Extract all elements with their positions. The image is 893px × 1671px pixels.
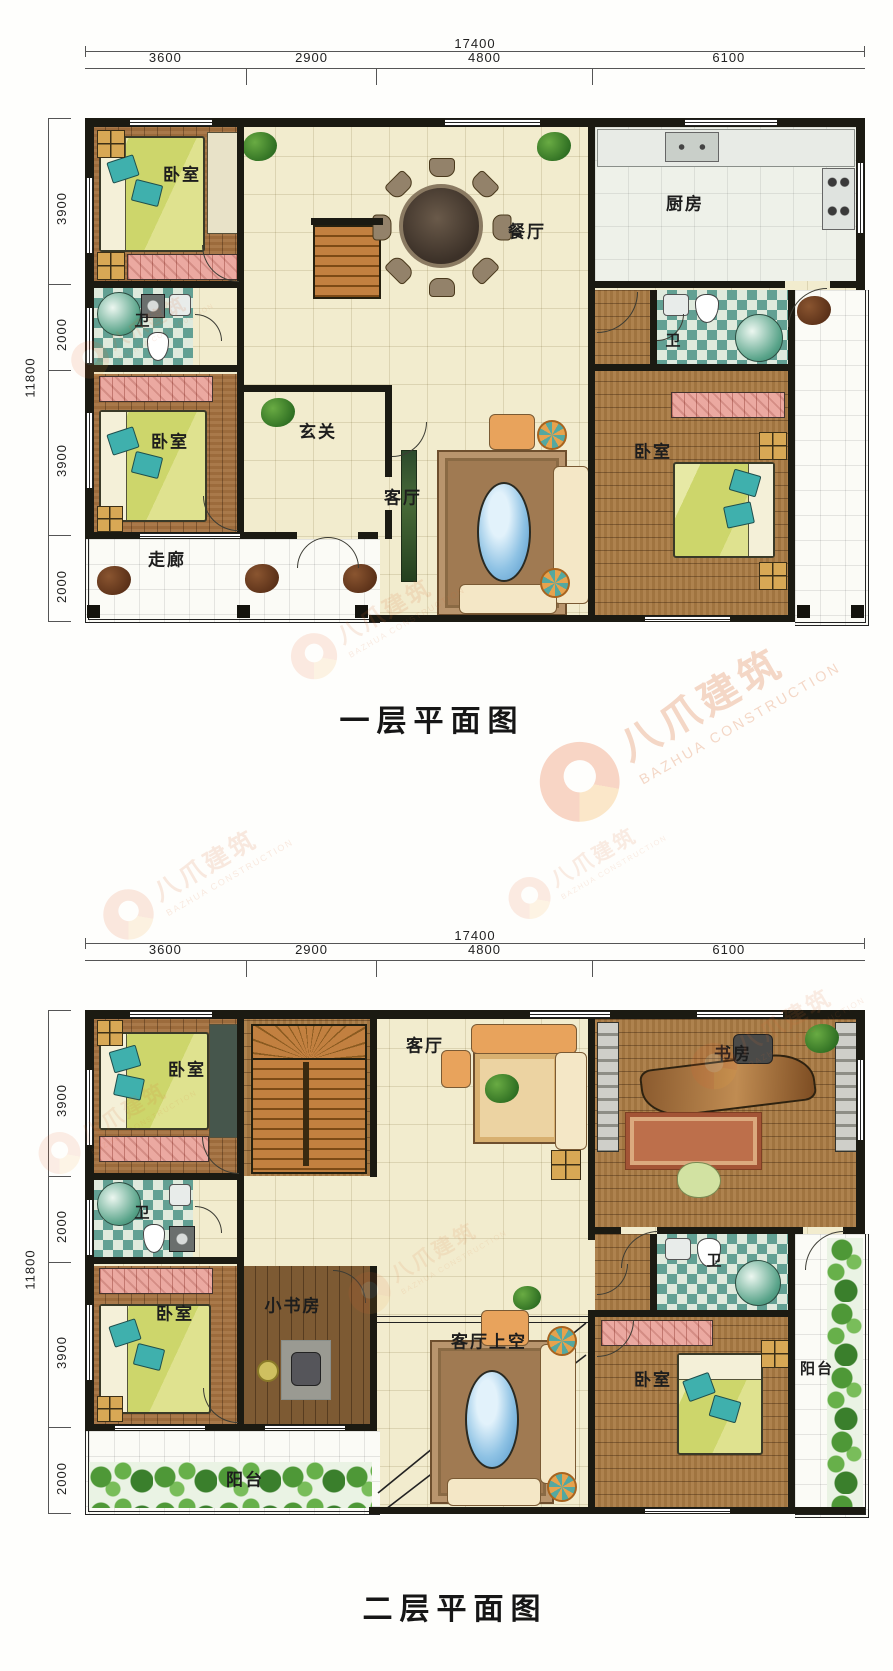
dim-seg: 2000 <box>49 1177 71 1263</box>
staircase <box>251 1058 367 1174</box>
floor1-plan: 卧室 卫 卧室 走廊 餐厅 玄关 客厅 厨房 卫 卧室 <box>85 118 865 622</box>
room-label-bedroom: 卧室 <box>168 1056 206 1081</box>
room-label-living-void: 客厅上空 <box>451 1328 527 1353</box>
dim-seg: 2900 <box>247 69 378 85</box>
wall <box>588 1310 790 1317</box>
living2-rug <box>473 1052 561 1144</box>
dim-total: 17400 <box>85 928 865 943</box>
watermark-brand-cn: 八爪建筑 <box>146 805 290 909</box>
room-label-entry: 玄关 <box>299 418 337 443</box>
dim-seg: 2000 <box>49 536 71 622</box>
wall <box>843 1227 857 1234</box>
dim-seg: 6100 <box>593 69 865 85</box>
dim-seg: 3600 <box>85 69 247 85</box>
window <box>86 1200 93 1255</box>
dining-chair <box>384 254 416 286</box>
room-label-small-study: 小书房 <box>265 1292 322 1317</box>
window <box>445 119 540 126</box>
beanbag <box>677 1162 721 1198</box>
wall <box>85 1173 244 1180</box>
room-label-living: 客厅 <box>384 484 422 509</box>
dim-total-label: 17400 <box>454 36 495 51</box>
wall <box>657 1227 803 1234</box>
armchair <box>441 1050 471 1088</box>
watermark-brand-en: BAZHUA CONSTRUCTION <box>559 833 668 901</box>
window <box>530 1011 610 1018</box>
wall <box>244 385 392 392</box>
wall <box>369 1507 595 1514</box>
nightstand <box>761 1340 789 1368</box>
room-label-bath: 卫 <box>134 1202 151 1223</box>
dining-table-set <box>385 170 497 282</box>
coffee-table <box>465 1370 519 1469</box>
watermark-logo-icon <box>525 727 634 836</box>
dim-seg: 4800 <box>377 69 592 85</box>
fan-decor <box>537 420 567 450</box>
wall <box>588 1010 595 1240</box>
fan-decor <box>547 1472 577 1502</box>
room-label-balcony: 阳台 <box>226 1466 264 1491</box>
window <box>130 119 212 126</box>
round-dining-table <box>399 184 483 268</box>
dining-chair <box>469 254 501 286</box>
wall <box>244 532 297 539</box>
watermark-logo-icon <box>282 625 345 688</box>
stair-rail <box>303 1062 309 1166</box>
room-label-balcony: 阳台 <box>800 1358 834 1379</box>
nightstand <box>97 1020 123 1046</box>
dim-chain-left-floor2: 11800 3900 2000 3900 2000 <box>18 1010 72 1514</box>
dim-seg: 6100 <box>593 961 865 977</box>
kitchen-counter <box>597 129 855 167</box>
sofa <box>471 1024 577 1054</box>
dresser <box>99 376 213 402</box>
dim-seg: 2000 <box>49 285 71 371</box>
porch-column <box>355 605 368 618</box>
fan-decor <box>547 1326 577 1356</box>
window <box>86 413 93 488</box>
dim-seg: 2000 <box>49 1428 71 1514</box>
dim-segments: 3900 2000 3900 2000 <box>48 1010 71 1514</box>
dim-chain-top-floor1: 17400 3600 2900 4800 6100 <box>85 36 865 85</box>
wall <box>830 281 865 288</box>
plant <box>537 132 571 161</box>
side-table <box>551 1150 581 1180</box>
dim-seg: 3900 <box>49 1010 71 1177</box>
wall <box>358 532 378 539</box>
wall <box>588 1312 595 1514</box>
nightstand <box>97 506 123 532</box>
dim-seg: 3900 <box>49 118 71 285</box>
floor2-plan: 卧室 客厅 书房 卫 卧室 小书房 客厅上空 卫 卧室 阳台 阳台 <box>85 1010 865 1514</box>
watermark-brand-cn: 八爪建筑 <box>607 608 835 772</box>
window <box>645 616 730 621</box>
wall <box>370 1266 377 1424</box>
window <box>86 178 93 253</box>
wall <box>370 1010 377 1177</box>
room-label-living: 客厅 <box>406 1032 444 1057</box>
wall <box>385 510 392 539</box>
window <box>685 119 777 126</box>
kitchen-sink <box>665 132 719 162</box>
dim-segments: 3900 2000 3900 2000 <box>48 118 71 622</box>
room-label-bath: 卫 <box>134 310 151 331</box>
window <box>115 1425 205 1430</box>
room-label-kitchen: 厨房 <box>666 190 704 215</box>
wall <box>595 281 785 288</box>
dim-segments: 3600 2900 4800 6100 <box>85 960 865 977</box>
wall <box>650 290 657 368</box>
watermark-brand-en: BAZHUA CONSTRUCTION <box>164 836 295 918</box>
sink <box>665 1238 691 1260</box>
nightstand <box>97 252 125 280</box>
dim-total: 11800 <box>23 1249 38 1289</box>
dim-chain-left-floor1: 11800 3900 2000 3900 2000 <box>18 118 72 622</box>
tv-wall-plants <box>401 450 417 582</box>
wall <box>237 118 244 539</box>
window <box>130 1011 212 1018</box>
shower <box>735 1260 781 1306</box>
stair-winder <box>251 1024 367 1060</box>
window <box>140 533 240 538</box>
dim-segments: 3600 2900 4800 6100 <box>85 68 865 85</box>
watermark: 八爪建筑BAZHUA CONSTRUCTION <box>94 803 296 949</box>
wall <box>588 290 595 622</box>
dresser <box>671 392 785 418</box>
fan-decor <box>540 568 570 598</box>
washing-machine <box>169 1226 195 1252</box>
dining-chair <box>429 158 455 177</box>
sink <box>169 294 191 316</box>
porch-column <box>87 605 100 618</box>
armchair <box>489 414 535 450</box>
dim-seg: 2900 <box>247 961 378 977</box>
dim-chain-top-floor2: 17400 3600 2900 4800 6100 <box>85 928 865 977</box>
dining-chair <box>469 169 501 201</box>
watermark: 八爪建筑BAZHUA CONSTRUCTION <box>501 805 669 926</box>
nightstand <box>759 562 787 590</box>
porch-column <box>237 605 250 618</box>
plant <box>261 398 295 427</box>
sink <box>663 294 689 316</box>
wall <box>788 1234 795 1514</box>
wall <box>237 1010 244 1431</box>
stove <box>822 168 855 230</box>
wall <box>85 281 244 288</box>
nightstand <box>759 432 787 460</box>
sofa <box>447 1478 541 1506</box>
dresser <box>99 1136 209 1162</box>
room-label-corridor: 走廊 <box>148 546 186 571</box>
sink <box>169 1184 191 1206</box>
shower <box>735 314 783 362</box>
chair <box>291 1352 321 1386</box>
watermark-brand-cn: 八爪建筑 <box>544 807 664 893</box>
wall <box>385 385 392 477</box>
room-label-bath: 卫 <box>706 1250 723 1271</box>
dim-seg: 3600 <box>85 961 247 977</box>
room-label-bedroom: 卧室 <box>634 438 672 463</box>
window <box>645 1508 730 1513</box>
sofa <box>555 1052 587 1150</box>
porch-column <box>851 605 864 618</box>
nightstand <box>97 1396 123 1422</box>
stairs <box>313 225 381 299</box>
window <box>86 308 93 363</box>
bookshelf <box>597 1022 619 1152</box>
room-label-study: 书房 <box>714 1040 752 1065</box>
dining-chair <box>429 278 455 297</box>
wall <box>311 218 383 225</box>
room-label-bedroom: 卧室 <box>163 161 201 186</box>
floor1-title: 一层平面图 <box>282 696 582 740</box>
door-arc <box>392 422 427 457</box>
wall <box>588 364 790 371</box>
window <box>857 163 864 233</box>
window <box>86 1305 93 1380</box>
wall <box>85 1257 244 1264</box>
floor2-title: 二层平面图 <box>305 1584 605 1628</box>
dim-seg: 4800 <box>377 961 592 977</box>
nightstand <box>97 130 125 158</box>
wardrobe <box>207 132 239 234</box>
wall <box>85 365 244 372</box>
room-label-bedroom: 卧室 <box>156 1300 194 1325</box>
dim-total: 17400 <box>85 36 865 51</box>
dim-total: 11800 <box>23 357 38 397</box>
dresser <box>99 1268 213 1294</box>
room-label-dining: 餐厅 <box>508 218 546 243</box>
coffee-table <box>477 482 531 582</box>
floorplan-sheet: 17400 3600 2900 4800 6100 11800 3900 200… <box>0 0 893 1671</box>
decor-dot <box>257 1360 279 1382</box>
dim-seg: 3900 <box>49 1263 71 1429</box>
wall <box>788 290 795 622</box>
porch-column <box>797 605 810 618</box>
wall <box>588 118 595 290</box>
room-label-bath: 卫 <box>665 330 682 351</box>
room-label-bedroom: 卧室 <box>151 428 189 453</box>
floor1-porch-right-floor <box>795 290 869 626</box>
sofa <box>540 1344 576 1484</box>
room-label-bedroom: 卧室 <box>634 1366 672 1391</box>
dim-seg: 3900 <box>49 371 71 537</box>
wall <box>595 1227 621 1234</box>
window <box>265 1425 345 1430</box>
door-arc <box>195 1206 222 1233</box>
watermark-brand-en: BAZHUA CONSTRUCTION <box>636 658 844 788</box>
window <box>857 1060 864 1140</box>
door-arc <box>195 314 222 341</box>
plant <box>513 1286 541 1310</box>
window <box>86 1070 93 1145</box>
window <box>697 1011 783 1018</box>
watermark-logo-icon <box>501 869 558 926</box>
plant <box>243 132 277 161</box>
